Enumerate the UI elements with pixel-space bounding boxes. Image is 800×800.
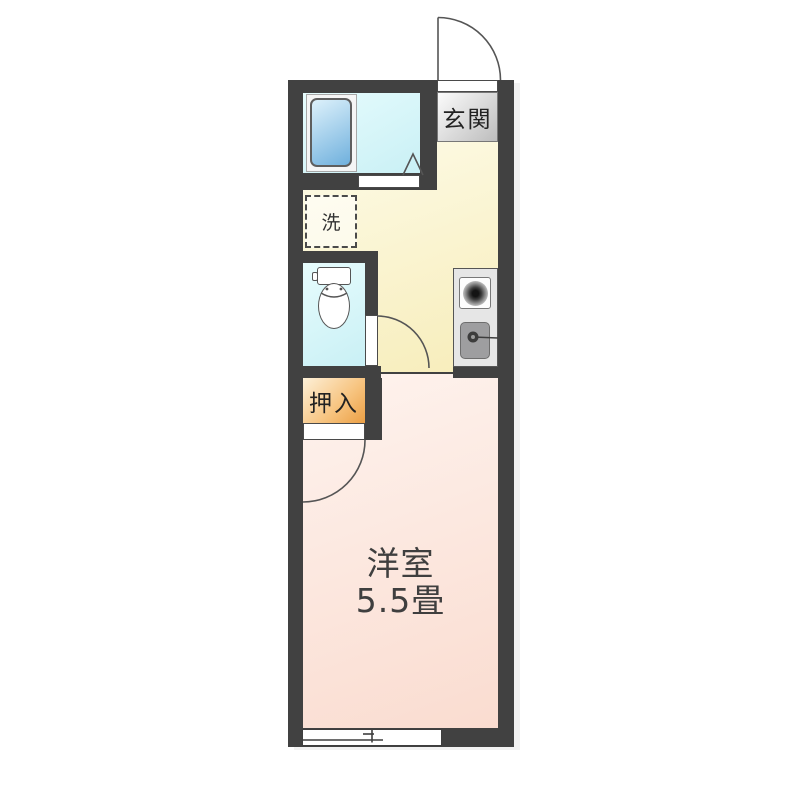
sink-icon [460,322,490,359]
toilet-door-leaf [365,315,378,366]
window-icon [302,729,442,746]
bathroom-door-opening [358,175,420,188]
room-label-block: 洋室 5.5畳 [303,545,498,619]
kitchen-room-divider-line [378,372,455,374]
bathtub-icon [310,98,352,167]
toilet-wall-right [365,263,378,315]
floor-plan-canvas: 玄関 洗 押入 洋室 5.5畳 [0,0,800,800]
closet-label: 押入 [309,384,359,418]
laundry-box: 洗 [305,195,357,248]
entrance-label-text: 玄関 [443,100,493,134]
stove-burner-circle [463,281,488,306]
laundry-label: 洗 [321,208,340,235]
toilet-wall-bottom [288,366,381,378]
toilet-flush-button-icon [312,272,318,281]
closet-wall-right [365,378,382,440]
entrance-label: 玄関 [437,92,498,142]
toilet-wall-top [288,251,378,263]
stove-burner-icon [459,277,491,309]
closet-sliding-door [303,423,365,440]
entrance-door-arc [438,18,501,81]
closet: 押入 [303,378,365,423]
entrance-door-opening [437,80,498,92]
toilet-bowl-icon [318,283,350,329]
room-name-label: 洋室 [367,545,435,582]
room-size-label: 5.5畳 [356,582,445,619]
